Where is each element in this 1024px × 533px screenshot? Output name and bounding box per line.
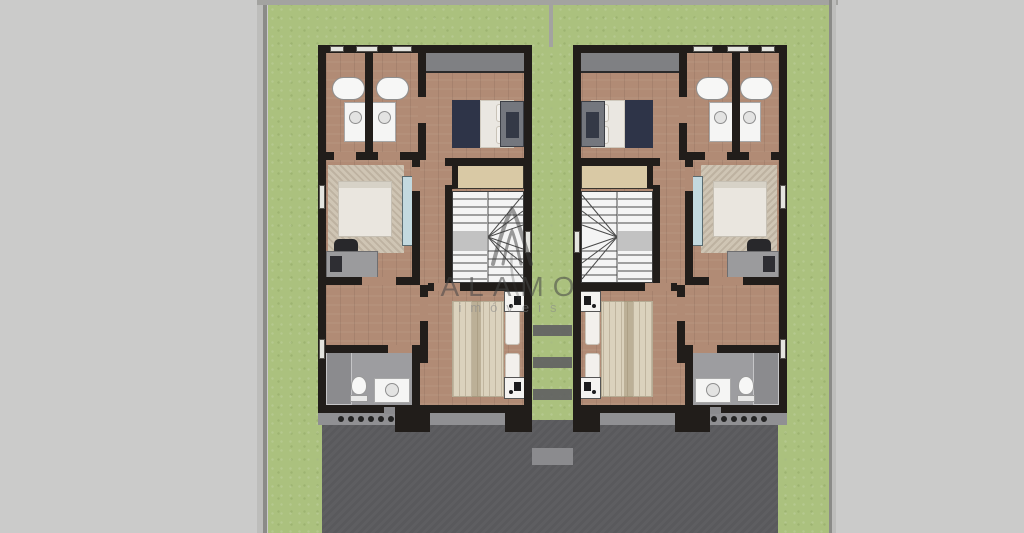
- dresser: [500, 101, 524, 147]
- stair-closet: [581, 165, 653, 189]
- shower-stall: [753, 352, 779, 405]
- driveway: [322, 420, 778, 533]
- decor-dot-icon: [509, 390, 513, 394]
- nightstand: [504, 377, 525, 399]
- nightstand: [580, 377, 601, 399]
- door-opening: [418, 97, 426, 123]
- single-bed: [338, 181, 392, 237]
- stair-closet: [452, 165, 524, 189]
- wall-top: [318, 45, 532, 53]
- bathtub: [376, 77, 409, 100]
- desk-monitor: [330, 256, 342, 272]
- desk-monitor: [763, 256, 775, 272]
- dresser: [581, 101, 605, 147]
- drain-dot: [711, 416, 717, 422]
- wall-bath2-right: [412, 345, 420, 405]
- drain-dot: [731, 416, 737, 422]
- door-opening: [362, 277, 396, 285]
- window: [330, 46, 344, 52]
- door-opening: [749, 152, 771, 160]
- drain-dot: [751, 416, 757, 422]
- window: [392, 46, 412, 52]
- staircase: [581, 191, 653, 283]
- window: [761, 46, 775, 52]
- decor-dot-icon: [592, 390, 596, 394]
- balcony-strip: [581, 53, 687, 73]
- driveway-crossing: [532, 448, 573, 465]
- drain-dot: [761, 416, 767, 422]
- plot-border-top: [257, 0, 838, 5]
- toilet-tank: [350, 395, 368, 402]
- drain-dot: [721, 416, 727, 422]
- sink-basin: [378, 111, 391, 124]
- duvet-runner: [624, 301, 633, 397]
- door-opening: [412, 167, 420, 191]
- property-divider-line: [549, 2, 553, 47]
- door-opening: [679, 97, 687, 123]
- window: [319, 185, 325, 209]
- toilet: [351, 376, 367, 395]
- drain-dot: [368, 416, 374, 422]
- wall-closet-top: [445, 158, 524, 166]
- door-opening: [705, 152, 727, 160]
- sink-basin: [349, 111, 362, 124]
- wall-stairs-left: [445, 185, 452, 285]
- shower-stall: [326, 352, 352, 405]
- wall-bath-divider: [365, 53, 373, 157]
- passage-bar: [533, 389, 572, 400]
- garage-pillar: [675, 407, 710, 432]
- window: [727, 46, 749, 52]
- sink-basin: [706, 383, 720, 397]
- window: [693, 46, 713, 52]
- door-opening: [378, 152, 400, 160]
- toilet-tank: [737, 395, 755, 402]
- dresser-top: [506, 112, 519, 138]
- navy-blanket: [625, 100, 653, 148]
- decor-plant-icon: [514, 382, 521, 391]
- floor-plan-scene: ALAMO imóveis: [0, 0, 1024, 533]
- passage-bar: [533, 325, 572, 336]
- navy-blanket: [452, 100, 480, 148]
- door-opening: [388, 345, 412, 353]
- drain-dot: [741, 416, 747, 422]
- garage-pillar: [573, 407, 600, 432]
- window: [780, 339, 786, 359]
- bathtub: [332, 77, 365, 100]
- bathtub: [740, 77, 773, 100]
- wall-closet-top: [581, 158, 660, 166]
- wall-right: [573, 45, 581, 413]
- watermark-subtitle: imóveis: [402, 300, 622, 315]
- wall-bath-divider: [732, 53, 740, 157]
- bathtub: [696, 77, 729, 100]
- plot-border-left-inner: [263, 0, 267, 533]
- watermark-title: ALAMO: [392, 271, 632, 303]
- drain-dot: [388, 416, 394, 422]
- window: [780, 185, 786, 209]
- plot-border-right-inner: [829, 0, 832, 533]
- drain-dot: [348, 416, 354, 422]
- drain-dot: [378, 416, 384, 422]
- garage-pillar: [395, 407, 430, 432]
- door-opening: [685, 167, 693, 191]
- dresser-top: [586, 112, 599, 138]
- townhouse-unit-right: [573, 45, 787, 420]
- garage-pillar: [505, 407, 532, 432]
- sink-basin: [714, 111, 727, 124]
- toilet: [738, 376, 754, 395]
- sink-basin: [743, 111, 756, 124]
- window: [574, 231, 580, 253]
- sink-basin: [385, 383, 399, 397]
- window: [356, 46, 378, 52]
- wall-top: [573, 45, 787, 53]
- window: [319, 339, 325, 359]
- door-opening: [677, 297, 685, 321]
- passage-bar: [533, 357, 572, 368]
- single-bed: [713, 181, 767, 237]
- plot-border-right: [832, 0, 836, 533]
- door-opening: [645, 283, 671, 291]
- door-opening: [693, 345, 717, 353]
- door-opening: [334, 152, 356, 160]
- decor-plant-icon: [584, 382, 591, 391]
- drain-dot: [338, 416, 344, 422]
- balcony-strip: [418, 53, 524, 73]
- duvet-runner: [472, 301, 481, 397]
- drain-dot: [358, 416, 364, 422]
- wall-bath2-right: [685, 345, 693, 405]
- wall-stairs-left: [653, 185, 660, 285]
- door-opening: [709, 277, 743, 285]
